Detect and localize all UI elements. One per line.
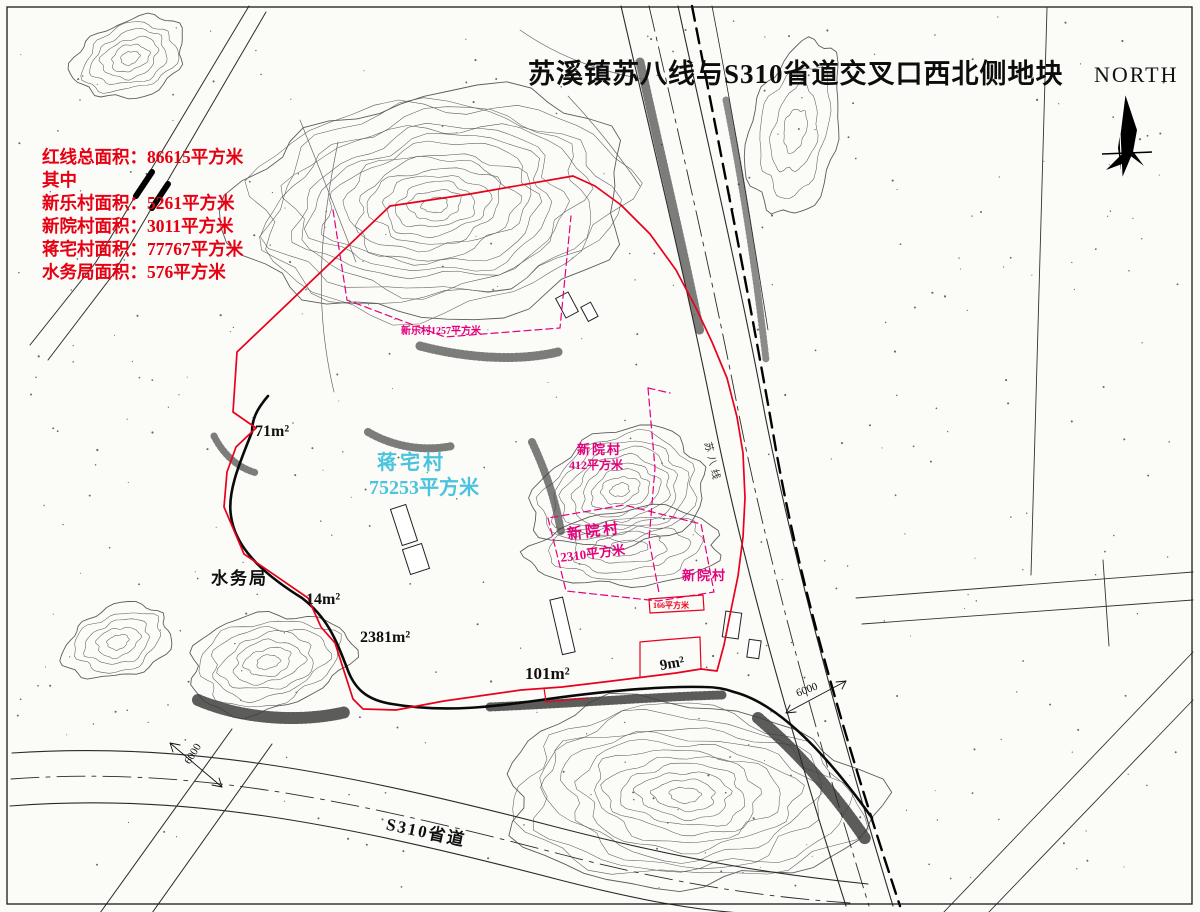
legend-line: 水务局面积：576平方米 [42, 261, 243, 284]
legend-line: 新院村面积：3011平方米 [42, 215, 243, 238]
north-label: NORTH [1094, 62, 1178, 88]
page-title: 苏溪镇苏八线与S310省道交叉口西北侧地块 [528, 52, 1064, 91]
legend-line: 红线总面积：86615平方米 [42, 146, 243, 169]
parcel-166-label: 166平方米 [653, 600, 689, 611]
legend-line: 其中 [42, 169, 243, 192]
parcel-xinyuan-mid-area: 412平方米 [569, 456, 623, 473]
area-mark-14: 14m² [306, 591, 340, 609]
red-line-area-legend: 红线总面积：86615平方米 其中 新乐村面积：5261平方米 新院村面积：30… [42, 146, 243, 284]
area-mark-71: 71m² [255, 423, 289, 441]
parcel-xinle-label: 新乐村1257平方米 [401, 322, 481, 337]
parcel-xinyuan-east-name: 新院村 [682, 565, 727, 584]
survey-drawing-page: 苏溪镇苏八线与S310省道交叉口西北侧地块 NORTH 红线总面积：86615平… [0, 0, 1200, 912]
north-arrow-icon [1098, 90, 1156, 186]
village-jiangzhai-area: 75253平方米 [369, 471, 479, 500]
area-mark-101: 101m² [525, 664, 570, 684]
legend-line: 新乐村面积：5261平方米 [42, 192, 243, 215]
legend-line: 蒋宅村面积：77767平方米 [42, 238, 243, 261]
water-bureau-label: 水务局 [211, 564, 268, 589]
area-mark-2381: 2381m² [360, 629, 410, 647]
